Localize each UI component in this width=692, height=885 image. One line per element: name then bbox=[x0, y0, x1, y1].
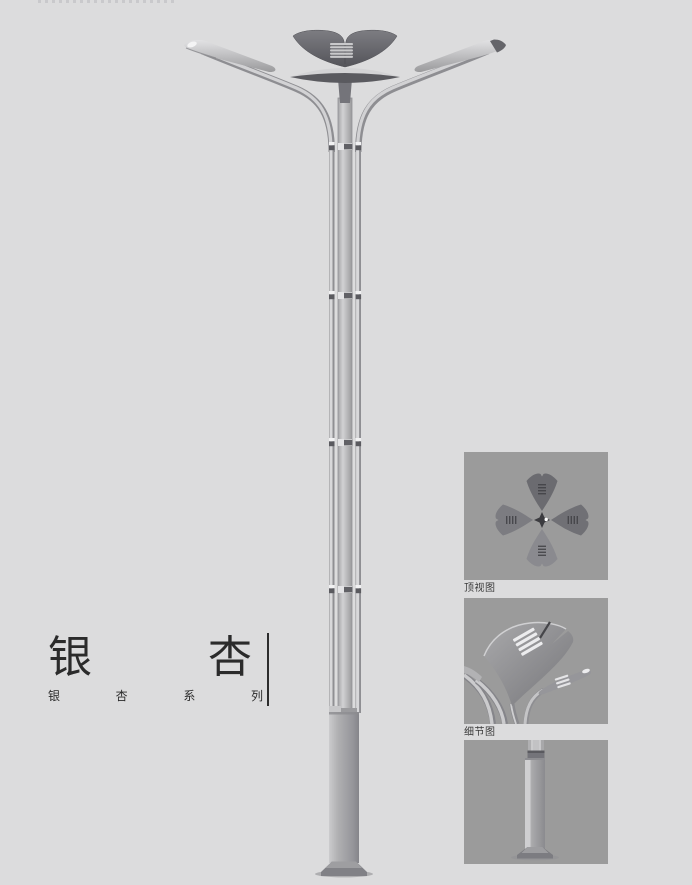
top-view-label: 顶视图 bbox=[464, 583, 608, 595]
lamp-base bbox=[315, 706, 373, 877]
detail-card-top-view: 顶视图 bbox=[464, 452, 608, 595]
detail-view-label: 细节图 bbox=[464, 727, 608, 739]
lamp-fixture-left bbox=[184, 40, 275, 72]
lamp-fixture-right bbox=[415, 40, 506, 73]
detail-view-image bbox=[464, 598, 608, 724]
top-view-image bbox=[464, 452, 608, 580]
detail-card-base-view bbox=[464, 740, 608, 867]
catalog-page: 银杏 银杏系列 bbox=[0, 0, 692, 885]
detail-card-detail-view: 细节图 bbox=[464, 598, 608, 739]
base-view-image bbox=[464, 740, 608, 864]
lamp-pole bbox=[331, 98, 358, 714]
